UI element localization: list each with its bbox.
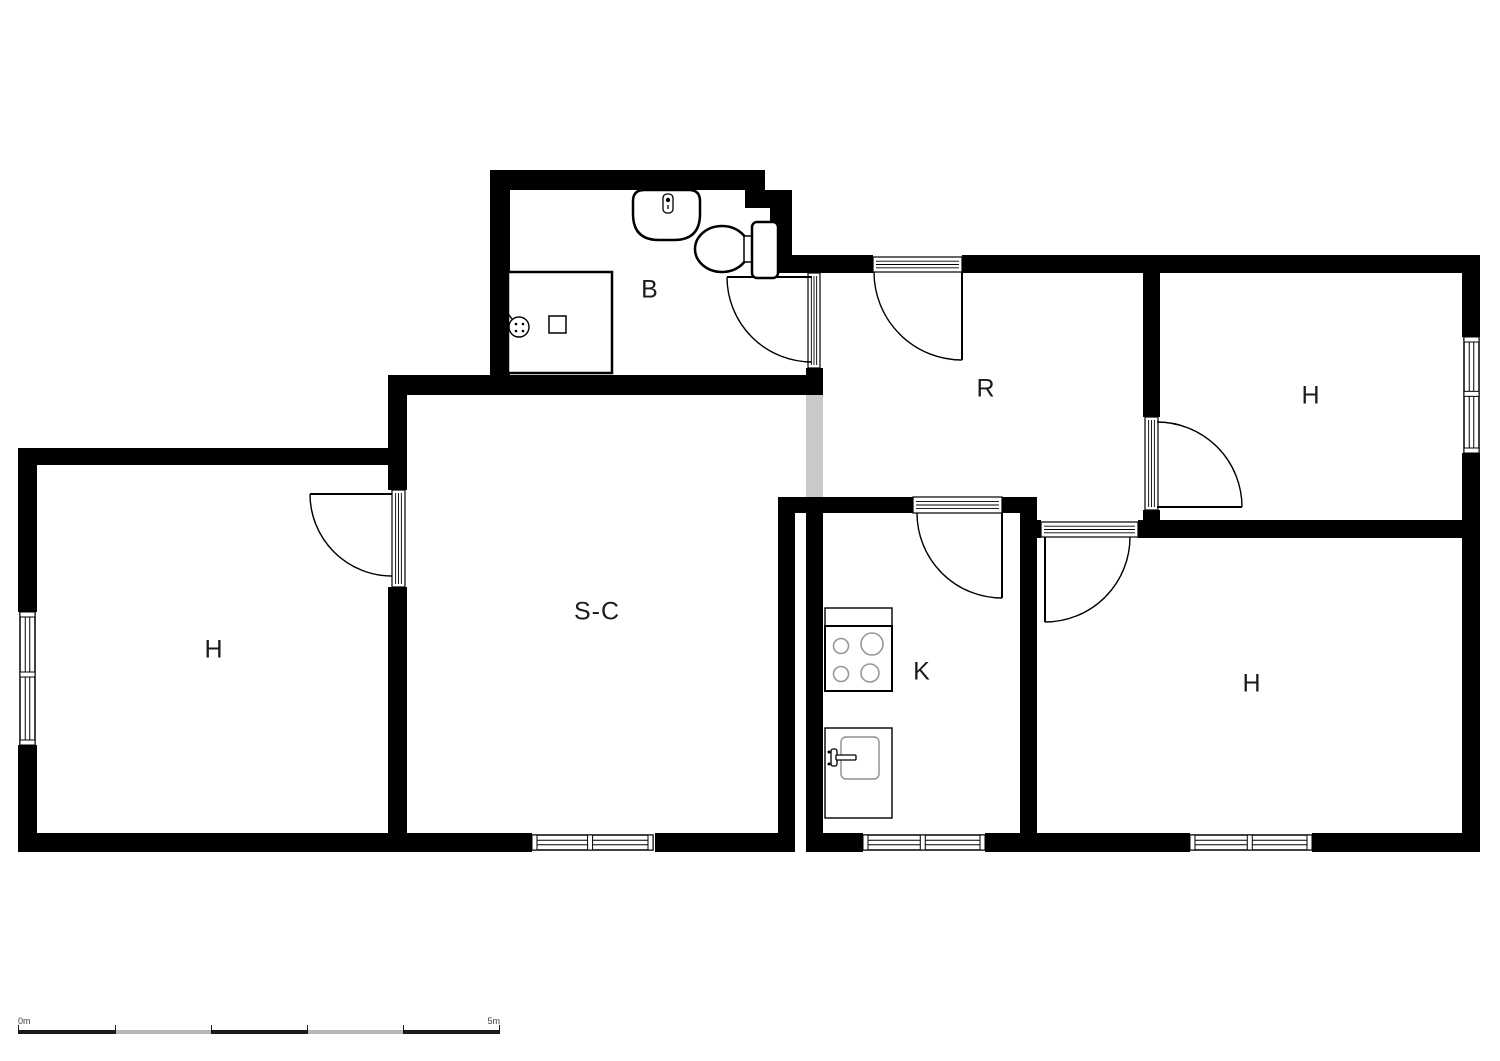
bedroom-br-door-swing-arc <box>1045 537 1130 622</box>
scale-tick <box>499 1025 500 1034</box>
scale-bar: 0m 5m <box>18 1016 500 1038</box>
toilet <box>752 222 778 278</box>
wall <box>1143 255 1160 417</box>
room-label-living-room: S-C <box>574 598 620 627</box>
wall <box>655 833 795 852</box>
scale-segment <box>211 1030 307 1034</box>
kitchen-door-swing-arc <box>917 513 1002 598</box>
room-label-bedroom-left: H <box>204 636 223 665</box>
window-cap <box>20 612 35 617</box>
shower <box>549 316 566 333</box>
shower <box>522 330 525 333</box>
floor-plan-canvas: BRHS-CHKH 0m 5m <box>0 0 1500 1061</box>
living-bedroom-door-swing-arc <box>310 494 392 576</box>
window-divider <box>920 835 925 850</box>
wall <box>18 745 37 833</box>
wall <box>962 255 1480 273</box>
wall <box>806 497 823 852</box>
room-label-bathroom: B <box>641 276 659 305</box>
open-passage <box>806 395 823 497</box>
window-cap <box>863 835 868 850</box>
wall <box>1002 497 1037 513</box>
wall <box>18 448 390 465</box>
wall <box>1020 513 1037 852</box>
shower <box>515 330 518 333</box>
wall <box>18 465 37 612</box>
window-divider <box>1464 391 1479 396</box>
window-cap <box>532 835 537 850</box>
toilet <box>695 226 749 272</box>
wall <box>388 375 823 395</box>
bathroom-sink <box>666 198 670 202</box>
window-cap <box>20 740 35 745</box>
scale-segment <box>307 1030 403 1034</box>
scale-tick <box>18 1025 19 1034</box>
scale-start-label: 0m <box>18 1016 31 1026</box>
wall <box>778 497 795 852</box>
kitchen-counter <box>825 608 892 626</box>
wall <box>745 190 792 208</box>
bathroom-door-swing-arc <box>727 277 812 362</box>
scale-segment <box>18 1030 115 1034</box>
wall <box>1462 273 1480 337</box>
window <box>20 612 35 745</box>
window-cap <box>1307 835 1312 850</box>
shower <box>522 323 525 326</box>
room-label-bedroom-top-right: H <box>1301 382 1320 411</box>
bedroom-tr-door-swing-arc <box>1157 422 1242 507</box>
scale-tick <box>403 1025 404 1034</box>
wall <box>490 170 765 190</box>
room-label-hall: R <box>976 375 995 404</box>
wall <box>18 833 532 852</box>
room-label-bedroom-bottom-right: H <box>1242 670 1261 699</box>
shower <box>515 323 518 326</box>
wall <box>388 587 407 833</box>
wall <box>1312 833 1480 852</box>
window-cap <box>1464 448 1479 453</box>
kitchen-sink <box>828 763 831 766</box>
window-divider <box>1247 835 1252 850</box>
wall <box>388 395 407 490</box>
scale-tick <box>211 1025 212 1034</box>
wall <box>1037 833 1190 852</box>
wall <box>1143 510 1160 538</box>
stove <box>825 626 892 691</box>
wall <box>985 833 1037 852</box>
scale-tick <box>115 1025 116 1034</box>
floor-plan-drawing <box>0 0 1500 1061</box>
window-cap <box>1190 835 1195 850</box>
shower <box>509 317 529 337</box>
window-cap <box>980 835 985 850</box>
wall <box>1462 453 1480 852</box>
wall <box>806 833 863 852</box>
window-divider <box>588 835 593 850</box>
scale-tick <box>307 1025 308 1034</box>
window-cap <box>1464 337 1479 342</box>
bathroom-sink <box>663 194 673 213</box>
scale-segment <box>403 1030 500 1034</box>
room-label-kitchen: K <box>913 658 931 687</box>
window-divider <box>20 672 35 677</box>
wall <box>770 255 873 273</box>
scale-segment <box>115 1030 211 1034</box>
wall <box>778 497 913 513</box>
kitchen-sink <box>828 751 831 754</box>
entrance-door-swing-arc <box>874 272 962 360</box>
scale-bar-segments <box>18 1030 500 1034</box>
kitchen-sink <box>836 755 856 760</box>
window-cap <box>648 835 653 850</box>
wall <box>1138 520 1462 538</box>
